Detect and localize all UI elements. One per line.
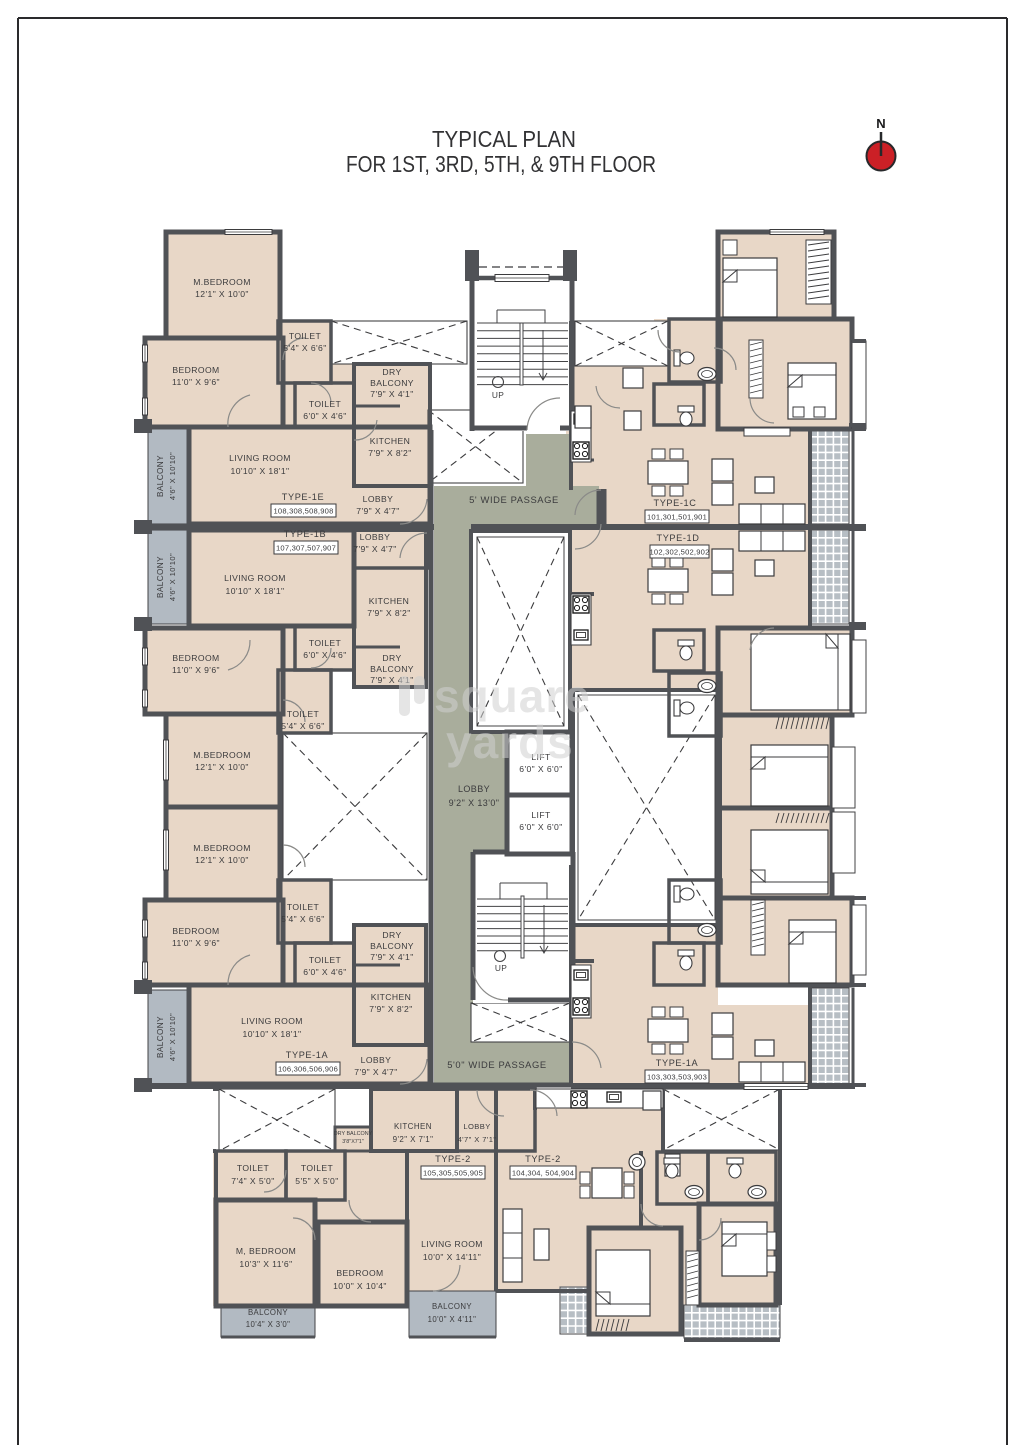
svg-text:3'8"X7'1": 3'8"X7'1" — [342, 1139, 364, 1145]
svg-text:KITCHEN: KITCHEN — [371, 992, 412, 1002]
svg-text:7'9" X 4'7": 7'9" X 4'7" — [354, 1067, 397, 1077]
svg-text:TOILET: TOILET — [289, 331, 322, 341]
svg-text:M.BEDROOM: M.BEDROOM — [193, 750, 251, 760]
svg-text:TYPE-1A: TYPE-1A — [656, 1058, 699, 1068]
svg-text:5'0" WIDE PASSAGE: 5'0" WIDE PASSAGE — [447, 1059, 547, 1070]
svg-text:9'2" X 13'0": 9'2" X 13'0" — [449, 798, 500, 808]
svg-text:yards: yards — [446, 716, 574, 768]
svg-text:LOBBY: LOBBY — [360, 532, 391, 542]
svg-text:4'6" X 10'10": 4'6" X 10'10" — [168, 452, 177, 500]
svg-text:7'9" X 8'2": 7'9" X 8'2" — [369, 1004, 412, 1014]
svg-text:101,301,501,901: 101,301,501,901 — [647, 512, 707, 521]
svg-text:7'9" X 4'7": 7'9" X 4'7" — [353, 544, 396, 554]
svg-text:TYPE-1E: TYPE-1E — [282, 492, 325, 502]
svg-text:TYPE-1D: TYPE-1D — [656, 533, 699, 543]
svg-text:TOILET: TOILET — [309, 638, 342, 648]
svg-text:7'9" X 4'7": 7'9" X 4'7" — [356, 506, 399, 516]
svg-text:LIVING ROOM: LIVING ROOM — [421, 1239, 483, 1249]
svg-text:BEDROOM: BEDROOM — [336, 1268, 383, 1278]
svg-text:12'1" X 10'0": 12'1" X 10'0" — [195, 762, 249, 772]
svg-text:5'4" X 6'6": 5'4" X 6'6" — [281, 914, 324, 924]
svg-text:BALCONY: BALCONY — [156, 556, 165, 598]
svg-text:10'0" X 4'11": 10'0" X 4'11" — [428, 1315, 477, 1324]
svg-text:BEDROOM: BEDROOM — [172, 365, 219, 375]
svg-text:TOILET: TOILET — [237, 1163, 270, 1173]
svg-text:10'4" X 3'0": 10'4" X 3'0" — [246, 1320, 291, 1329]
svg-text:square: square — [434, 670, 591, 722]
svg-text:KITCHEN: KITCHEN — [394, 1122, 432, 1131]
svg-text:106,306,506,906: 106,306,506,906 — [278, 1064, 338, 1073]
svg-text:BALCONY: BALCONY — [370, 664, 414, 674]
svg-text:5'5" X 5'0": 5'5" X 5'0" — [295, 1176, 338, 1186]
svg-text:KITCHEN: KITCHEN — [369, 596, 410, 606]
svg-text:108,308,508,908: 108,308,508,908 — [273, 506, 333, 515]
svg-text:TOILET: TOILET — [301, 1163, 334, 1173]
svg-text:TYPE-2: TYPE-2 — [525, 1154, 561, 1164]
svg-text:M.BEDROOM: M.BEDROOM — [193, 843, 251, 853]
svg-text:7'9" X 4'1": 7'9" X 4'1" — [370, 952, 413, 962]
svg-text:4'7" X 7'1": 4'7" X 7'1" — [458, 1135, 497, 1144]
svg-text:10'10" X 18'1": 10'10" X 18'1" — [226, 586, 285, 596]
svg-text:LIVING ROOM: LIVING ROOM — [224, 573, 286, 583]
svg-text:11'0" X 9'6": 11'0" X 9'6" — [172, 665, 220, 675]
svg-text:104,304, 504,904: 104,304, 504,904 — [512, 1168, 574, 1177]
svg-text:M.BEDROOM: M.BEDROOM — [193, 277, 251, 287]
svg-text:5'4" X 6'6": 5'4" X 6'6" — [283, 343, 326, 353]
svg-text:BEDROOM: BEDROOM — [172, 926, 219, 936]
svg-text:107,307,507,907: 107,307,507,907 — [276, 543, 336, 552]
svg-text:7'9" X 8'2": 7'9" X 8'2" — [368, 448, 411, 458]
svg-text:10'0" X 14'11": 10'0" X 14'11" — [423, 1252, 481, 1262]
svg-text:TOILET: TOILET — [309, 955, 342, 965]
svg-text:11'0" X 9'6": 11'0" X 9'6" — [172, 377, 220, 387]
svg-text:TYPE-1C: TYPE-1C — [653, 498, 696, 508]
svg-text:11'0" X 9'6": 11'0" X 9'6" — [172, 938, 220, 948]
svg-text:DRY: DRY — [382, 653, 401, 663]
svg-text:9'2" X 7'1": 9'2" X 7'1" — [393, 1135, 434, 1144]
svg-text:LIFT: LIFT — [531, 810, 551, 820]
svg-text:105,305,505,905: 105,305,505,905 — [423, 1168, 483, 1177]
svg-text:UP: UP — [492, 390, 504, 400]
svg-text:BALCONY: BALCONY — [370, 378, 414, 388]
svg-text:103,303,503,903: 103,303,503,903 — [647, 1072, 707, 1081]
svg-text:7'4" X 5'0": 7'4" X 5'0" — [231, 1176, 274, 1186]
svg-text:LIVING ROOM: LIVING ROOM — [229, 453, 291, 463]
svg-text:7'9" X 8'2": 7'9" X 8'2" — [367, 608, 410, 618]
svg-text:5'4" X 6'6": 5'4" X 6'6" — [281, 721, 324, 731]
svg-text:TOILET: TOILET — [309, 399, 342, 409]
svg-text:10'10" X 18'1": 10'10" X 18'1" — [231, 466, 290, 476]
svg-text:7'9" X 4'1": 7'9" X 4'1" — [370, 389, 413, 399]
svg-text:12'1" X 10'0": 12'1" X 10'0" — [195, 855, 249, 865]
svg-text:KITCHEN: KITCHEN — [370, 436, 411, 446]
svg-text:FOR 1ST, 3RD, 5TH, & 9TH FLOOR: FOR 1ST, 3RD, 5TH, & 9TH FLOOR — [346, 151, 656, 177]
svg-text:5' WIDE PASSAGE: 5' WIDE PASSAGE — [469, 494, 559, 505]
svg-text:BEDROOM: BEDROOM — [172, 653, 219, 663]
svg-text:6'0" X 4'6": 6'0" X 4'6" — [303, 650, 346, 660]
svg-text:TYPICAL PLAN: TYPICAL PLAN — [432, 126, 576, 152]
svg-text:LOBBY: LOBBY — [458, 784, 490, 794]
svg-text:BALCONY: BALCONY — [370, 941, 414, 951]
svg-text:LOBBY: LOBBY — [361, 1055, 392, 1065]
svg-text:BALCONY: BALCONY — [248, 1308, 288, 1317]
svg-text:10'10" X 18'1": 10'10" X 18'1" — [243, 1029, 302, 1039]
svg-text:BALCONY: BALCONY — [156, 1016, 165, 1058]
svg-text:LOBBY: LOBBY — [363, 494, 394, 504]
svg-text:TYPE-2: TYPE-2 — [435, 1154, 471, 1164]
svg-text:LOBBY: LOBBY — [463, 1122, 490, 1131]
svg-text:4'6" X 10'10": 4'6" X 10'10" — [168, 1013, 177, 1061]
svg-text:TOILET: TOILET — [287, 902, 320, 912]
svg-text:TOILET: TOILET — [287, 709, 320, 719]
svg-text:10'3" X 11'6": 10'3" X 11'6" — [239, 1259, 292, 1269]
svg-text:DRY BALCONY: DRY BALCONY — [334, 1131, 373, 1137]
svg-text:N: N — [876, 116, 885, 131]
svg-text:M, BEDROOM: M, BEDROOM — [236, 1246, 296, 1256]
svg-text:DRY: DRY — [382, 367, 401, 377]
svg-text:BALCONY: BALCONY — [432, 1302, 472, 1311]
svg-text:DRY: DRY — [382, 930, 401, 940]
svg-text:LIVING ROOM: LIVING ROOM — [241, 1016, 303, 1026]
svg-text:10'0" X 10'4": 10'0" X 10'4" — [333, 1281, 387, 1291]
svg-text:102,302,502,902: 102,302,502,902 — [649, 547, 709, 556]
svg-text:12'1" X 10'0": 12'1" X 10'0" — [195, 289, 249, 299]
svg-text:6'0" X 4'6": 6'0" X 4'6" — [303, 411, 346, 421]
svg-text:TYPE-1A: TYPE-1A — [286, 1050, 329, 1060]
svg-text:BALCONY: BALCONY — [156, 455, 165, 497]
svg-text:TYPE-1B: TYPE-1B — [284, 529, 327, 539]
svg-text:UP: UP — [495, 963, 507, 973]
svg-text:6'0" X 4'6": 6'0" X 4'6" — [303, 967, 346, 977]
svg-text:4'6" X 10'10": 4'6" X 10'10" — [168, 553, 177, 601]
svg-text:6'0" X 6'0": 6'0" X 6'0" — [519, 822, 562, 832]
